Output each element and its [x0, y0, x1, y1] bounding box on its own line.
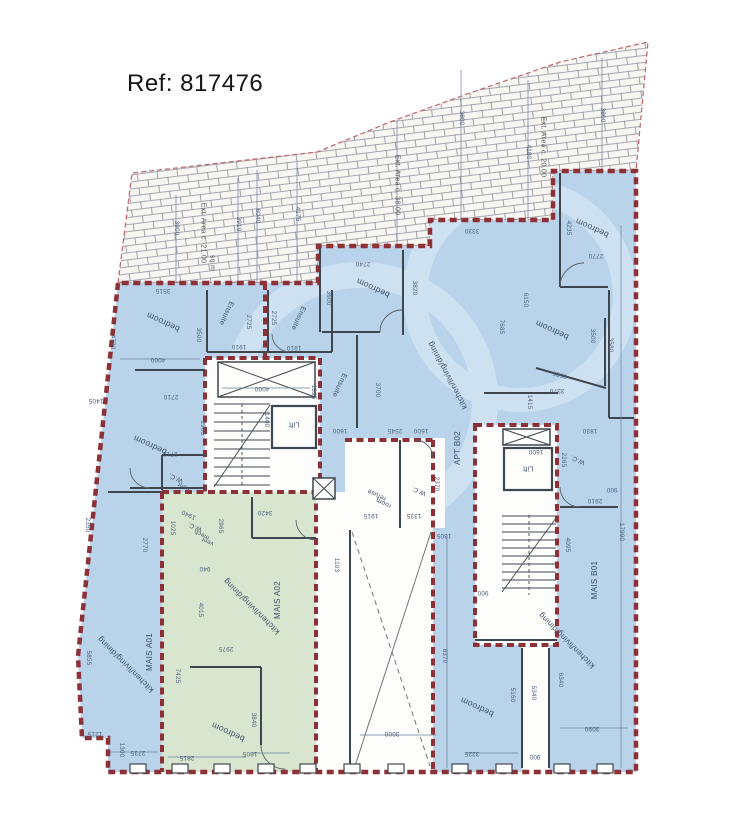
green-unit-fill	[162, 492, 316, 772]
floor-plan-page: Ref: 817476	[0, 0, 731, 829]
floor-plan-drawing	[0, 0, 731, 829]
